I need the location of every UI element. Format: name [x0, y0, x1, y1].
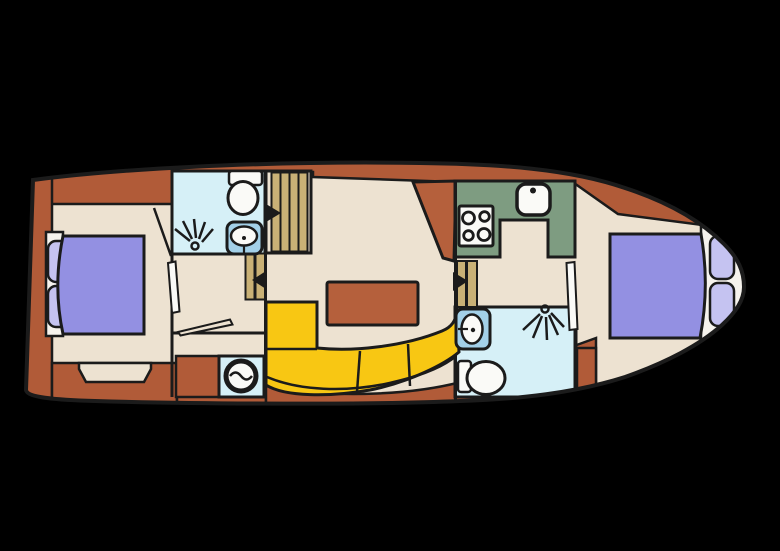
faucet-dot	[530, 188, 536, 194]
toilet-icon	[228, 182, 258, 215]
spray-ray	[546, 317, 547, 340]
aft-stairs	[266, 171, 311, 253]
aft-cabin-entry-step	[79, 363, 151, 382]
engine-locker	[176, 356, 219, 397]
stair-tread	[246, 254, 255, 300]
stair-tread	[281, 173, 290, 252]
drain-dot	[471, 328, 475, 332]
toilet-icon	[467, 362, 505, 395]
door-leaf-icon	[567, 262, 578, 330]
table-icon	[327, 282, 418, 325]
floor-plan-canvas	[0, 0, 780, 551]
double-bed-icon	[58, 236, 144, 334]
stair-tread	[299, 173, 308, 252]
fore-locker	[577, 348, 596, 389]
washing-machine-icon	[226, 361, 256, 391]
double-bed-icon	[610, 234, 705, 338]
aft-bed	[46, 232, 144, 336]
stair-tread	[467, 261, 477, 307]
drain-dot	[242, 236, 246, 240]
corridor-steps	[246, 254, 267, 300]
yacht-deck-plan	[0, 0, 780, 551]
stair-tread	[290, 173, 299, 252]
